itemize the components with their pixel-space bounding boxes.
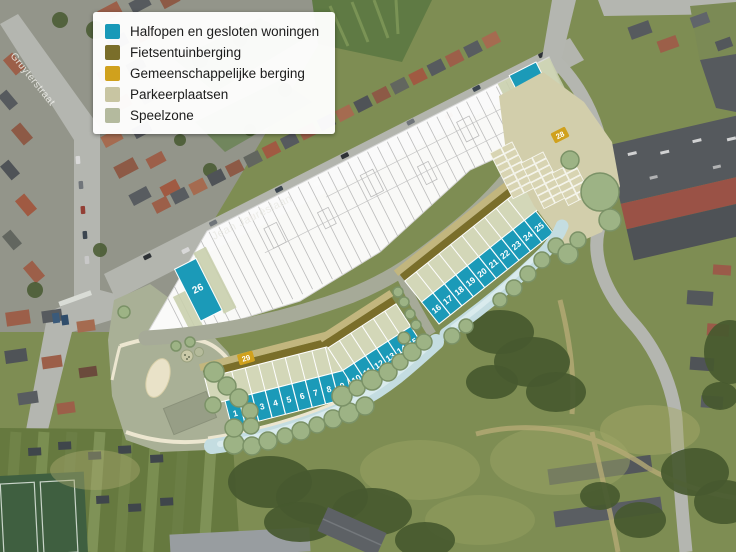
tree-cluster <box>614 502 666 538</box>
play-equipment <box>181 350 193 362</box>
garden-shed <box>128 503 141 512</box>
tree <box>243 437 261 455</box>
tree <box>205 397 221 413</box>
legend-swatch-woningen <box>105 24 120 39</box>
tree <box>599 209 621 231</box>
tree <box>356 397 374 415</box>
play-equipment <box>195 348 204 357</box>
tree <box>506 280 522 296</box>
tree <box>399 297 409 307</box>
legend-label-woningen: Halfopen en gesloten woningen <box>130 24 319 39</box>
tree <box>242 403 258 419</box>
tree <box>459 319 473 333</box>
garden-shed <box>58 441 71 450</box>
legend-panel: Halfopen en gesloten woningen Fietsentui… <box>93 12 335 134</box>
tree <box>118 306 130 318</box>
legend-item-gemeenschappelijke-berging: Gemeenschappelijke berging <box>105 63 323 84</box>
garden-shed <box>150 454 163 463</box>
tree <box>416 334 432 350</box>
tree-cluster <box>580 482 620 510</box>
tree <box>243 418 259 434</box>
tree-cluster <box>466 365 518 399</box>
tree <box>520 266 536 282</box>
legend-swatch-speelzone <box>105 108 120 123</box>
tree <box>292 422 310 440</box>
tree <box>309 417 325 433</box>
tree <box>581 173 619 211</box>
tree <box>27 282 43 298</box>
tree <box>444 328 460 344</box>
tree <box>52 12 68 28</box>
house-roof <box>61 315 69 326</box>
site-plan-map: 26 27 1234567891011121314151617181920212… <box>0 0 736 552</box>
car <box>82 231 87 239</box>
tree <box>93 243 107 257</box>
tree <box>411 320 421 330</box>
tree <box>174 134 186 146</box>
tree <box>225 419 243 437</box>
tree <box>534 252 550 268</box>
legend-swatch-berging <box>105 66 120 81</box>
tree <box>171 341 181 351</box>
legend-label-parkeerplaatsen: Parkeerplaatsen <box>130 87 228 102</box>
car <box>78 181 83 189</box>
tree <box>185 337 195 347</box>
house-roof <box>687 290 714 306</box>
tree-cluster <box>526 372 586 412</box>
legend-swatch-parkeerplaatsen <box>105 87 120 102</box>
garden-shed <box>118 445 131 454</box>
legend-item-woningen: Halfopen en gesloten woningen <box>105 21 323 42</box>
garden-shed <box>96 495 109 504</box>
garden-shed <box>28 447 41 456</box>
house-roof <box>713 264 732 275</box>
legend-item-parkeerplaatsen: Parkeerplaatsen <box>105 84 323 105</box>
car <box>80 206 85 214</box>
car <box>84 256 89 264</box>
legend-item-speelzone: Speelzone <box>105 105 323 126</box>
tree <box>277 428 293 444</box>
tree <box>405 309 415 319</box>
legend-label-fietsentuinberging: Fietsentuinberging <box>130 45 241 60</box>
tree <box>393 287 403 297</box>
tree <box>259 432 277 450</box>
tree <box>570 232 586 248</box>
car <box>75 156 80 164</box>
tree <box>398 332 410 344</box>
tree <box>561 151 579 169</box>
legend-item-fietsentuinberging: Fietsentuinberging <box>105 42 323 63</box>
legend-swatch-fietsentuinberging <box>105 45 120 60</box>
house-roof <box>52 313 60 324</box>
legend-label-berging: Gemeenschappelijke berging <box>130 66 305 81</box>
legend-list: Halfopen en gesloten woningen Fietsentui… <box>105 21 323 126</box>
legend-label-speelzone: Speelzone <box>130 108 194 123</box>
tree <box>493 293 507 307</box>
garden-shed <box>160 497 173 506</box>
